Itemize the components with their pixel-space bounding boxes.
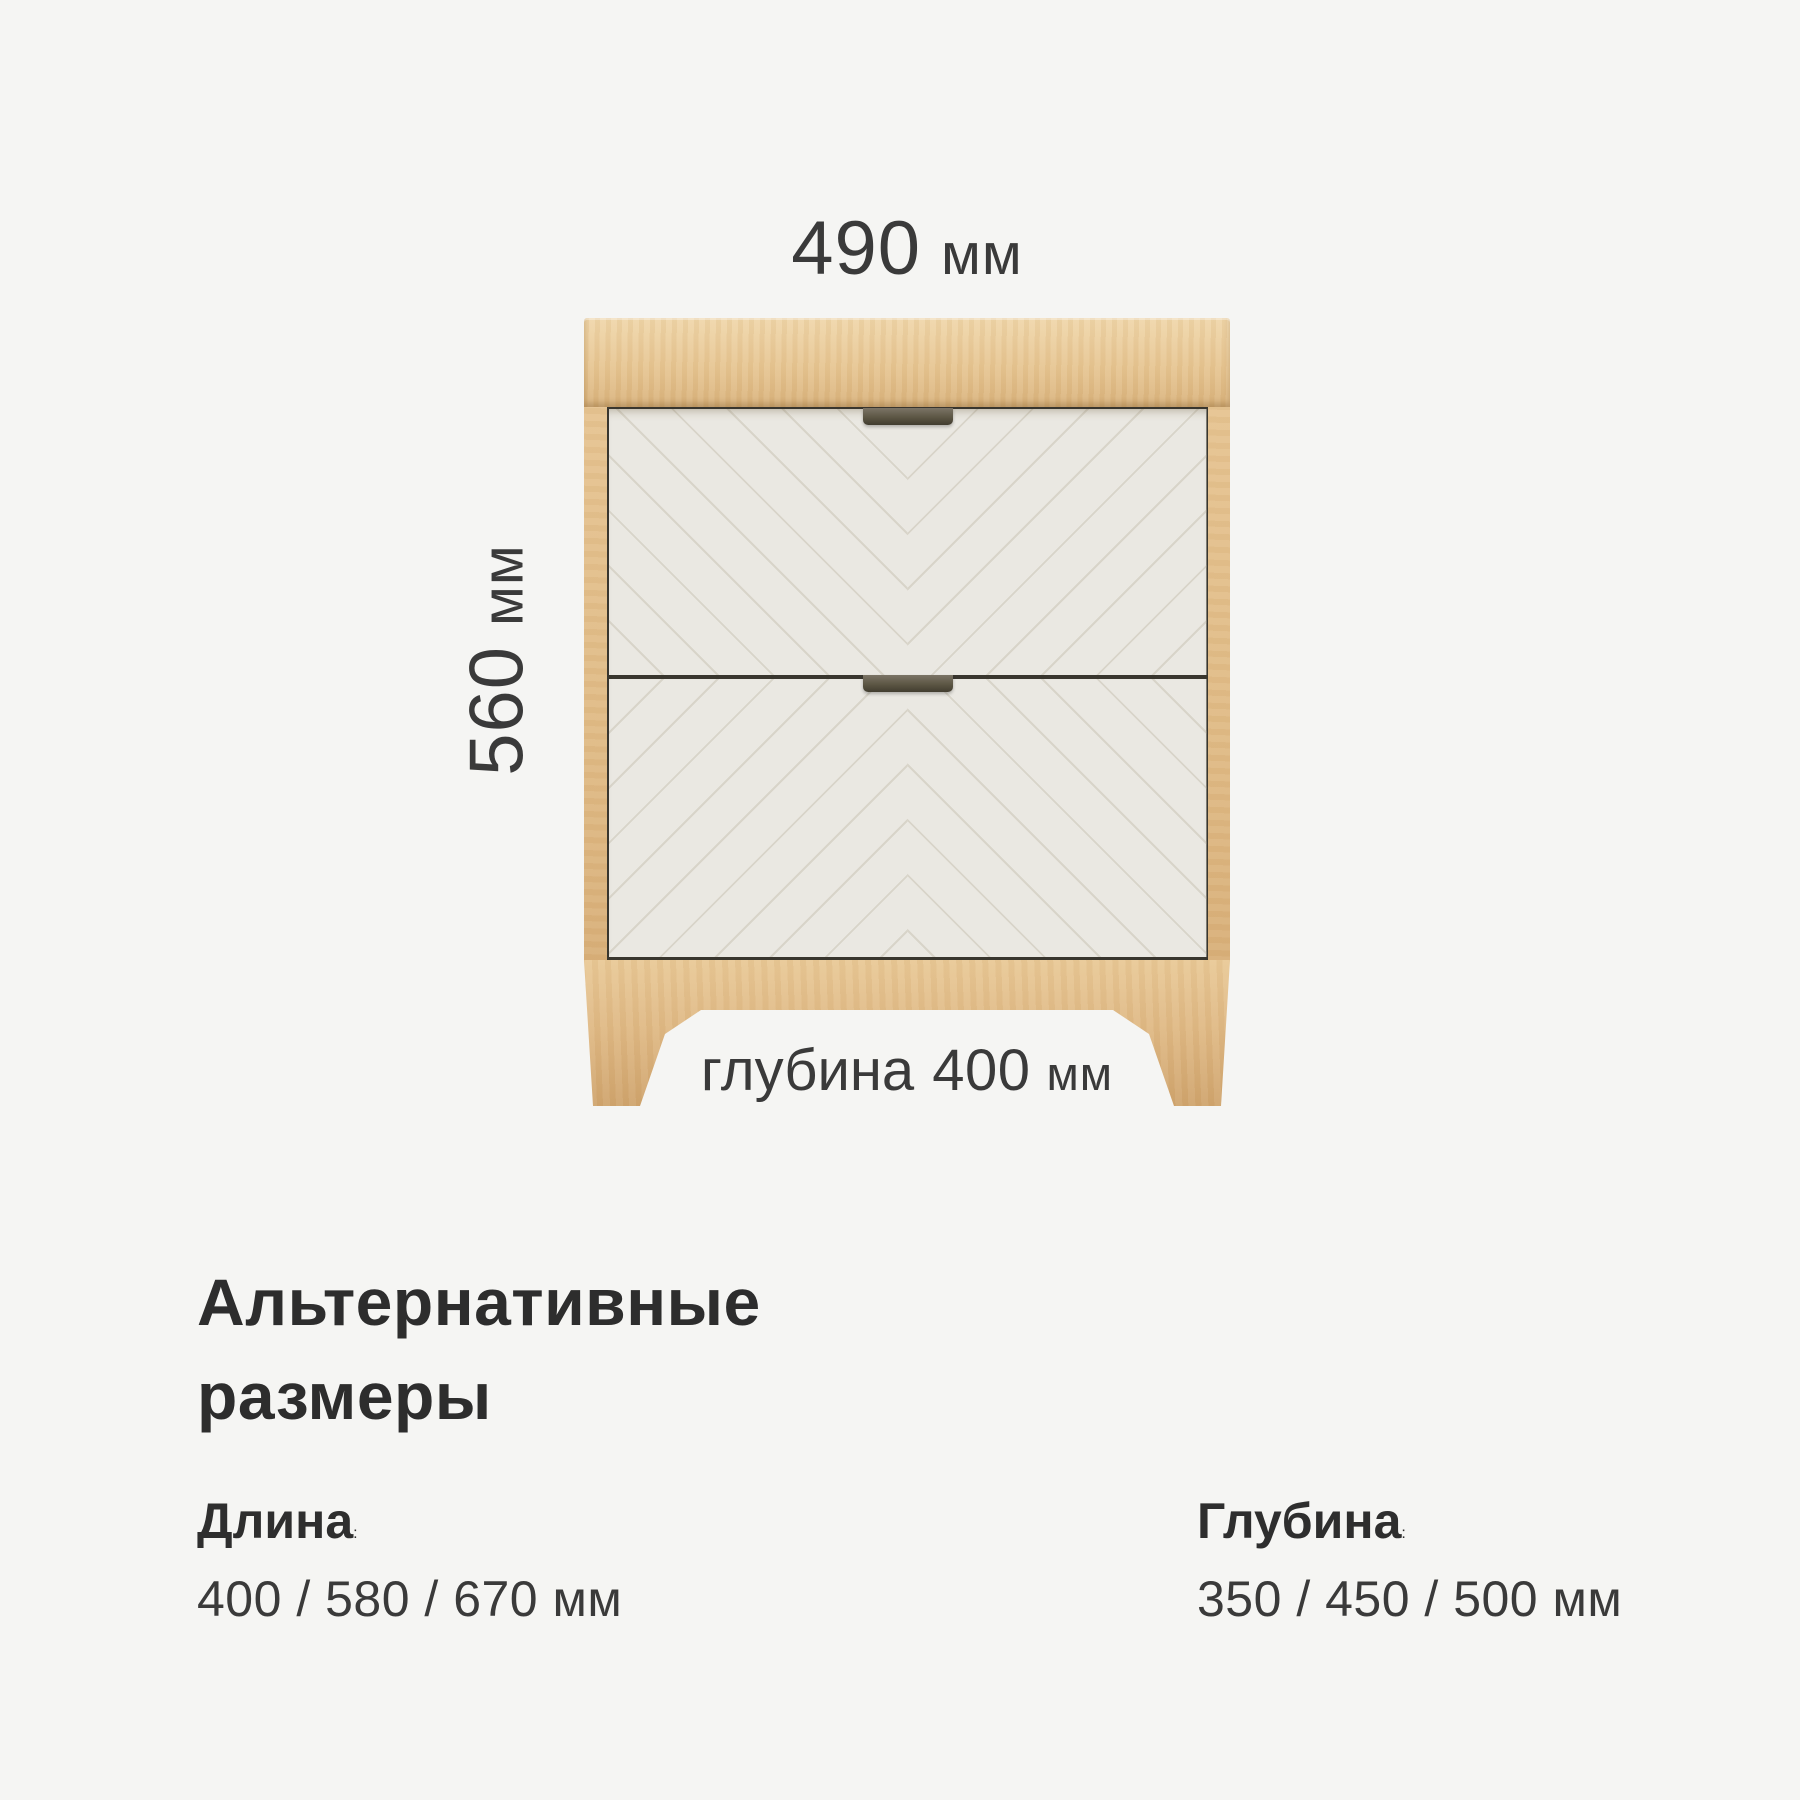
depth-options-label: Глубина: [1197,1492,1622,1550]
depth-value: 400 [932,1037,1030,1104]
depth-dimension-label: глубина 400 мм [701,1037,1113,1104]
chevron-pattern-right [907,409,1206,675]
length-options-label: Длина: [197,1492,622,1550]
length-options-values: 400 / 580 / 670 мм [197,1570,622,1628]
product-dimensions-card: 490 мм 560 мм [0,0,1800,1800]
drawer-top [609,409,1206,675]
width-value: 490 [791,205,921,292]
alt-sizes-heading: Альтернативные размеры [197,1256,897,1443]
depth-options-column: Глубина: 350 / 450 / 500 мм [1197,1492,1622,1628]
chevron-pattern-left [609,679,908,957]
drawer-top-handle [863,408,953,425]
width-unit: мм [941,221,1023,288]
depth-options-values: 350 / 450 / 500 мм [1197,1570,1622,1628]
length-options-column: Длина: 400 / 580 / 670 мм [197,1492,622,1628]
drawer-area [607,407,1208,960]
height-value: 560 [454,646,541,776]
furniture-top-panel [584,318,1230,407]
depth-unit: мм [1046,1046,1113,1101]
height-unit: мм [470,544,537,626]
drawer-bottom-handle [863,675,953,692]
product-illustration [584,318,1230,1106]
chevron-pattern-right [907,679,1206,957]
chevron-pattern-left [609,409,908,675]
height-dimension-label: 560 мм [454,544,541,776]
furniture-body-frame [584,407,1230,960]
drawer-bottom [609,679,1206,957]
width-dimension-label: 490 мм [791,205,1023,292]
depth-prefix: глубина [701,1037,914,1104]
